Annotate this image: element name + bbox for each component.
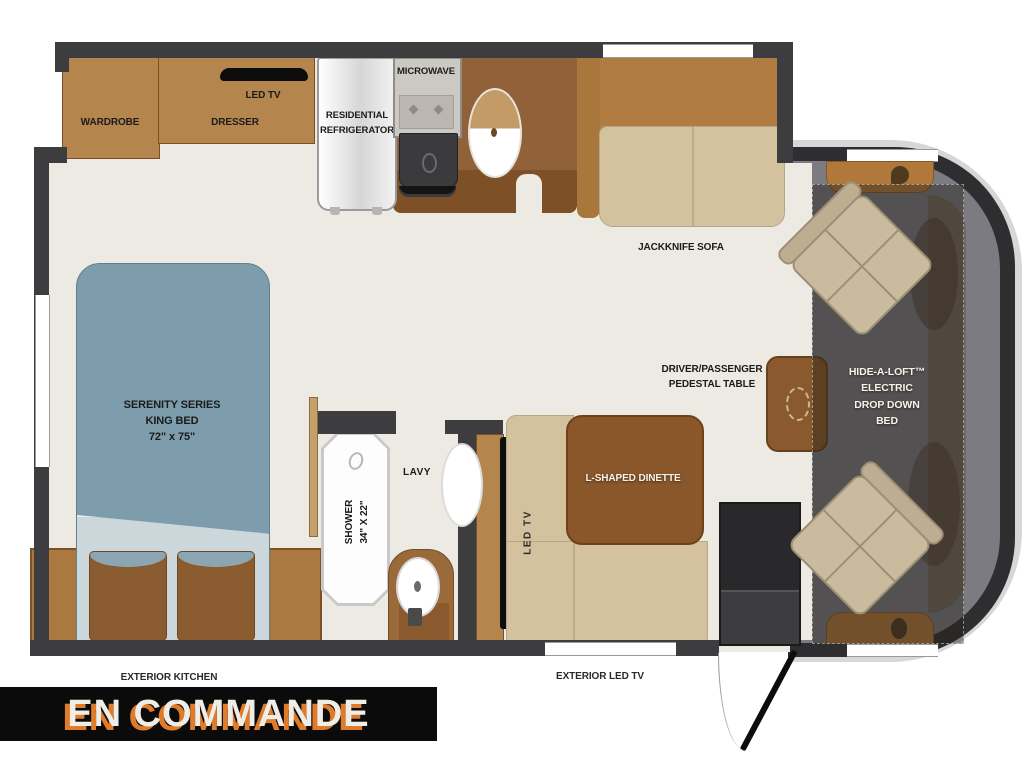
king-bed-label: SERENITY SERIES KING BED 72" x 75" [92,398,252,446]
entry-door [740,650,798,752]
toilet-fixture-icon [408,608,422,626]
refrigerator-foot [330,207,340,215]
banner-text: EN COMMANDE [67,693,369,736]
rv-floorplan: LED TV WARDROBE DRESSER SERENITY SERIES … [0,0,1024,768]
bed-pillow [89,551,167,641]
sink-drain-icon [491,128,497,137]
entry-step [719,502,801,646]
bathroom-door [309,397,318,537]
sofa-label: JACKKNIFE SOFA [601,241,761,254]
bed-pillow [177,551,255,641]
exterior-kitchen-label: EXTERIOR KITCHEN [89,671,249,684]
window-left [35,295,50,467]
wall-sofa-right-stub [777,42,793,163]
counter-notch [516,174,542,213]
range-stove [399,133,458,188]
lavy-label: LAVY [387,466,447,479]
jackknife-sofa-back [577,58,783,130]
wall-top-left-stub [55,42,69,72]
status-banner: EN COMMANDE [0,687,437,741]
burner-icon [422,153,437,173]
window-cab-bottom [847,644,938,657]
jackknife-sofa-seat [599,126,785,227]
entry-door-arc [718,653,745,749]
bedroom-tv-label: LED TV [225,89,301,102]
window-bottom [545,642,676,656]
toilet-flush-icon [414,581,421,592]
jackknife-sofa-arm [577,58,600,218]
bathroom-sink [441,443,483,527]
exterior-tv-label: EXTERIOR LED TV [520,670,680,683]
window-top [603,44,753,58]
dresser-label: DRESSER [160,116,310,129]
microwave-panel [399,95,454,129]
kitchen-sink [468,88,522,178]
refrigerator-foot [372,207,382,215]
wardrobe-cabinet [62,55,160,159]
dinette-bench-bottom [506,541,708,650]
range-base [399,186,456,197]
microwave-label: MICROWAVE [391,66,461,78]
sofa-cushion-seam [692,127,694,226]
dash-console-icon [891,166,909,184]
bedroom-tv [220,68,308,81]
wall-lavy-cap [445,420,503,434]
refrigerator-label: RESIDENTIAL REFRIGERATOR [317,108,397,138]
wall-bathroom-top [318,411,396,434]
pedestal-table-label: DRIVER/PASSENGER PEDESTAL TABLE [632,363,792,392]
dinette-tv-label: LED TV [522,503,535,563]
dinette-label: L-SHAPED DINETTE [570,472,696,485]
wardrobe-label: WARDROBE [64,116,156,129]
entry-step-lower [721,590,799,644]
dinette-cushion-seam [573,542,575,649]
pedestal-mount-icon [786,387,810,421]
shower-label: SHOWER 34" X 22" [342,477,372,567]
drop-down-bed-label: HIDE-A-LOFT™ ELECTRIC DROP DOWN BED [820,364,954,429]
